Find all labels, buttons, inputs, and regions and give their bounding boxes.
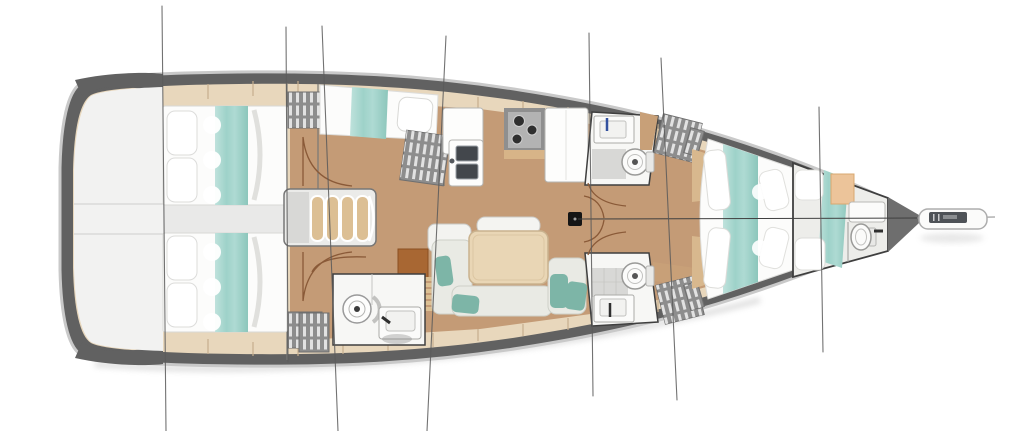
throw-pillow <box>451 294 480 315</box>
pillow <box>167 111 197 155</box>
bowsprit <box>919 209 987 229</box>
mark <box>938 214 940 221</box>
headboard-cushion <box>831 174 854 204</box>
shower-drain <box>354 306 360 312</box>
toilet-lid-dot <box>632 159 638 165</box>
sink-basin <box>456 146 478 161</box>
basin-shadow <box>382 334 412 344</box>
mark <box>943 215 957 219</box>
toilet-lid-dot <box>632 273 638 279</box>
toilet-icon <box>851 224 876 250</box>
step-tread <box>326 196 339 241</box>
duvet-fold <box>752 240 768 256</box>
duvet-fold <box>203 243 221 261</box>
pillow <box>167 283 197 327</box>
duvet-fold <box>203 278 221 296</box>
steps-landing <box>287 192 309 243</box>
engine-box-top <box>163 204 290 234</box>
duvet-fold <box>203 313 221 331</box>
duvet-fold <box>203 151 221 169</box>
cabinet <box>849 202 885 222</box>
salon-table <box>469 231 548 284</box>
hanging-locker-aft-top <box>288 92 320 128</box>
bed-runner <box>350 87 388 139</box>
toilet-icon <box>622 149 654 175</box>
cistern <box>646 266 654 286</box>
head-top-right <box>585 112 658 185</box>
bowsprit-shadow <box>920 233 984 243</box>
pillow <box>795 238 825 270</box>
washbasin-icon <box>594 116 634 143</box>
step-tread <box>356 196 369 241</box>
pillow <box>167 236 197 280</box>
cistern <box>646 152 654 172</box>
hanging-locker-bath <box>299 313 329 352</box>
pillow <box>397 97 434 134</box>
cockpit-floor <box>74 87 163 351</box>
floorplan-svg <box>0 0 1024 431</box>
shower-tile <box>592 149 626 179</box>
step-tread <box>311 196 324 241</box>
burner <box>527 125 537 135</box>
basin <box>600 121 626 138</box>
aft-cabin-bottom <box>163 233 287 332</box>
pillow <box>167 158 197 202</box>
sink-basin <box>456 164 478 179</box>
berth-sheet <box>795 170 823 200</box>
basin <box>600 299 626 316</box>
duvet-fold <box>752 184 768 200</box>
locker-slats <box>288 92 320 128</box>
burner <box>514 116 525 127</box>
mark <box>933 214 935 221</box>
washbasin-icon <box>594 295 634 322</box>
step-tread <box>341 196 354 241</box>
yacht-floorplan <box>0 0 1024 431</box>
stove-icon <box>504 108 545 159</box>
duvet-fold <box>203 186 221 204</box>
throw-pillow <box>564 281 588 312</box>
toilet-icon <box>622 263 654 289</box>
locker-slats <box>299 313 329 352</box>
toilet-bowl <box>851 224 871 250</box>
stove-fiddle-rail <box>504 150 545 159</box>
burner <box>512 134 522 144</box>
basin <box>386 311 415 331</box>
duvet-fold <box>203 116 221 134</box>
mast-center <box>574 218 577 221</box>
aft-cabin-top <box>163 106 287 205</box>
faucet <box>450 159 455 164</box>
washbasin-icon <box>379 307 421 344</box>
